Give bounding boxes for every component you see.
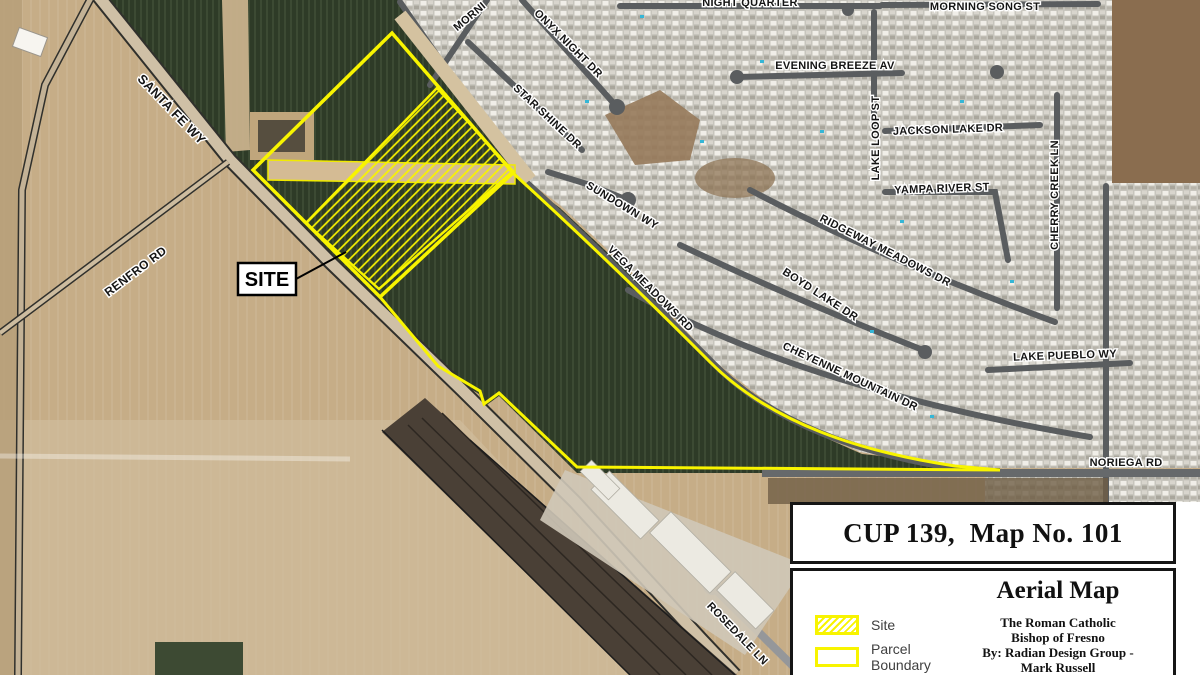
client-line-3: By: Radian Design Group -: [943, 645, 1173, 660]
farm-road-vertical: [222, 0, 250, 152]
farm-track: [0, 456, 350, 459]
dirt-patch-tail: [695, 158, 775, 198]
legend-item-site: Site: [815, 615, 943, 635]
legend-label-parcel-boundary: Parcel Boundary: [871, 641, 943, 673]
street-label-night-quarter: NIGHT QUARTER: [702, 0, 798, 9]
street-label-noriega-rd: NORIEGA RD: [1090, 457, 1163, 469]
legend-swatch-site: [815, 615, 859, 635]
map-type-title: Aerial Map: [943, 577, 1173, 605]
legend-item-parcel-boundary: Parcel Boundary: [815, 641, 943, 673]
dirt-field-northeast: [1112, 0, 1200, 183]
site-callout-label: SITE: [245, 269, 289, 291]
title-block: CUP 139, Map No. 101 Site Parcel Boundar…: [790, 502, 1200, 675]
client-line-1: The Roman Catholic: [943, 615, 1173, 630]
client-line-4: Mark Russell: [943, 660, 1173, 675]
aerial-map-page: SITE SANTA FE WYRENFRO RDMORNIONYX NIGHT…: [0, 0, 1200, 675]
legend-label-site: Site: [871, 617, 895, 633]
green-patch-south: [155, 642, 243, 675]
title-box: CUP 139, Map No. 101: [790, 502, 1176, 564]
street-label-morning-song-st: MORNING SONG ST: [930, 1, 1040, 13]
street-label-cherry-creek-ln: CHERRY CREEK LN: [1049, 140, 1061, 250]
legend: Site Parcel Boundary: [793, 571, 943, 675]
map-title: CUP 139, Map No. 101: [843, 518, 1123, 549]
client-line-2: Bishop of Fresno: [943, 630, 1173, 645]
map-info: Aerial Map The Roman Catholic Bishop of …: [943, 571, 1173, 675]
street-label-lake-loop-st: LAKE LOOP ST: [870, 96, 882, 181]
legend-swatch-parcel-boundary: [815, 647, 859, 667]
street-label-evening-breeze-av: EVENING BREEZE AV: [775, 60, 895, 72]
info-box: Site Parcel Boundary Aerial Map The Roma…: [790, 568, 1176, 675]
weed-strip: [768, 478, 1108, 504]
